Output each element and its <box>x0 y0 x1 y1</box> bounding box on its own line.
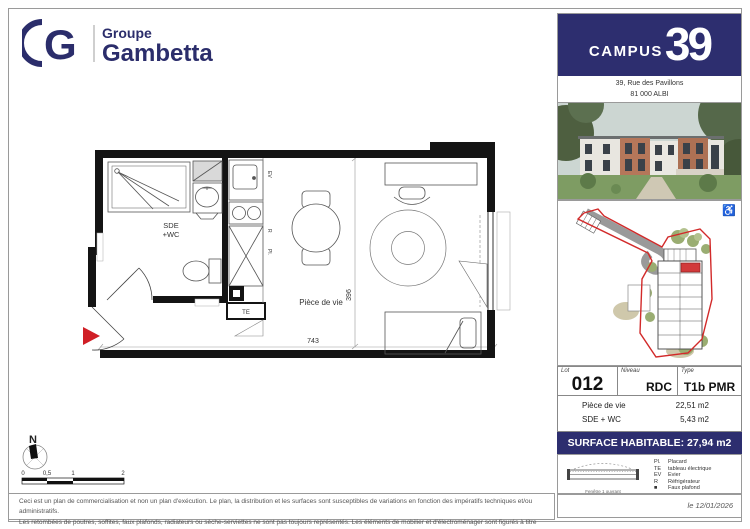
legend-label: Placard <box>668 459 687 465</box>
legend-label: Faux plafond <box>668 485 700 491</box>
dim-width-label: 743 <box>307 338 319 345</box>
area-value: 22,51 m2 <box>676 399 709 413</box>
building-photo-render <box>558 103 741 199</box>
desk <box>385 163 477 205</box>
window-legend: Fenêtre 1 ouvrant <box>564 458 642 494</box>
site-plan-panel: ♿ <box>557 200 742 366</box>
legal-line-2: Les retombées de poutres, soffites, faux… <box>19 518 544 529</box>
legend-label: Evier <box>668 472 681 478</box>
entry-door <box>92 307 124 350</box>
bathroom-door <box>107 268 152 300</box>
dining-table <box>292 191 340 265</box>
living-room-label: Pièce de vie <box>299 298 343 307</box>
legend-item: Pl.Placard <box>654 459 711 466</box>
lot-level-cell: Niveau RDC <box>617 366 677 396</box>
electrical-panel <box>227 303 265 336</box>
logo-group-word: Groupe <box>102 25 152 41</box>
legend-panel: Fenêtre 1 ouvrant Pl.Placard TEtableau é… <box>557 454 742 494</box>
te-label: TE <box>242 310 250 316</box>
bathroom-closet <box>193 161 222 181</box>
scale-tick-0: 0 <box>21 471 25 477</box>
window-legend-drawing <box>564 458 642 484</box>
address-line-1: 39, Rue des Pavillons <box>558 79 741 90</box>
address-line-2: 81 000 ALBI <box>558 90 741 101</box>
area-row-bathroom: SDE + WC 5,43 m2 <box>558 413 741 427</box>
area-row-living: Pièce de vie 22,51 m2 <box>558 399 741 413</box>
vanity-sink <box>193 183 222 219</box>
legend-abbr: TE <box>654 466 668 473</box>
sde-label-line1: SDE <box>163 221 178 230</box>
scale-bar: 0 0,5 1 2 <box>21 471 125 484</box>
lot-caption: Lot <box>561 368 569 374</box>
sde-label-line2: +WC <box>163 230 180 239</box>
site-plan-map <box>562 207 738 359</box>
info-column: CAMPUS 39 39, Rue des Pavillons 81 000 A… <box>557 0 742 529</box>
area-list: Pièce de vie 22,51 m2 SDE + WC 5,43 m2 <box>557 396 742 432</box>
type-value: T1b PMR <box>678 380 741 394</box>
lot-type-cell: Type T1b PMR <box>677 366 742 396</box>
area-name: Pièce de vie <box>582 399 626 413</box>
area-name: SDE + WC <box>582 413 621 427</box>
building-footprint <box>658 249 702 349</box>
gambetta-monogram-letter: G <box>44 21 77 68</box>
legend-abbr: R <box>654 479 668 486</box>
compass-and-scale: N 0 0,5 1 2 <box>18 430 148 495</box>
campus-number: 39 <box>665 24 710 65</box>
kitchen-sink <box>229 160 263 200</box>
surface-habitable-bar: SURFACE HABITABLE: 27,94 m2 <box>557 432 742 454</box>
project-address: 39, Rue des Pavillons 81 000 ALBI <box>558 76 741 101</box>
ev-label: EV <box>266 171 272 178</box>
building-photo <box>557 102 742 200</box>
radiator-label-box <box>97 233 103 261</box>
legal-line-1: Ceci est un plan de commercialisation et… <box>19 497 544 518</box>
entry-arrow <box>83 327 100 345</box>
scale-tick-1: 1 <box>71 471 75 477</box>
dim-height-label: 396 <box>346 289 353 301</box>
date-strip: le 12/01/2026 <box>557 494 742 518</box>
faux-plafond-swatch: ■ <box>654 485 668 492</box>
project-logo-panel: CAMPUS 39 39, Rue des Pavillons 81 000 A… <box>557 13 742 103</box>
pl-label: Pl. <box>266 249 272 255</box>
toilet <box>183 259 221 283</box>
scale-tick-05: 0,5 <box>43 471 52 477</box>
french-window <box>459 212 510 310</box>
placard-closet <box>229 226 263 286</box>
bed <box>385 312 481 354</box>
legend-list: Pl.Placard TEtableau électrique EVEvier … <box>654 459 711 492</box>
lot-number-cell: Lot 012 <box>557 366 617 396</box>
level-caption: Niveau <box>621 368 640 374</box>
legend-item: EVEvier <box>654 472 711 479</box>
level-value: RDC <box>618 380 677 394</box>
cooktop <box>229 202 263 224</box>
scale-tick-2: 2 <box>121 471 125 477</box>
lot-number: 012 <box>558 374 617 396</box>
walls <box>88 142 495 358</box>
lot-header-row: Lot 012 Niveau RDC Type T1b PMR <box>557 366 742 396</box>
compass-icon <box>23 444 47 469</box>
legend-item: TEtableau électrique <box>654 466 711 473</box>
gambetta-monogram-paren <box>22 22 42 64</box>
area-value: 5,43 m2 <box>680 413 709 427</box>
plan-sheet: G Groupe Gambetta <box>0 0 750 529</box>
legend-item: RRéfrigérateur <box>654 479 711 486</box>
floor-plan: SDE +WC Pièce de vie TE EV R Pl. 743 396 <box>83 137 528 372</box>
door-size-label-box <box>195 299 219 306</box>
r-label: R <box>266 229 272 233</box>
gambetta-logo: G Groupe Gambetta <box>22 15 272 70</box>
type-caption: Type <box>681 368 694 374</box>
legend-item-faux-plafond: ■Faux plafond <box>654 485 711 492</box>
turning-circle <box>370 210 446 286</box>
legend-abbr: EV <box>654 472 668 479</box>
legal-disclaimer: Ceci est un plan de commercialisation et… <box>8 493 555 520</box>
legend-label: tableau électrique <box>668 466 711 472</box>
campus39-logo: CAMPUS 39 <box>558 14 741 76</box>
campus-wordmark: CAMPUS <box>589 43 663 60</box>
legend-label: Réfrigérateur <box>668 479 700 485</box>
faux-plafond-marker <box>229 286 244 301</box>
logo-gambetta-word: Gambetta <box>102 40 213 67</box>
highlighted-unit <box>681 263 700 272</box>
legend-abbr: Pl. <box>654 459 668 466</box>
shower <box>108 162 190 212</box>
